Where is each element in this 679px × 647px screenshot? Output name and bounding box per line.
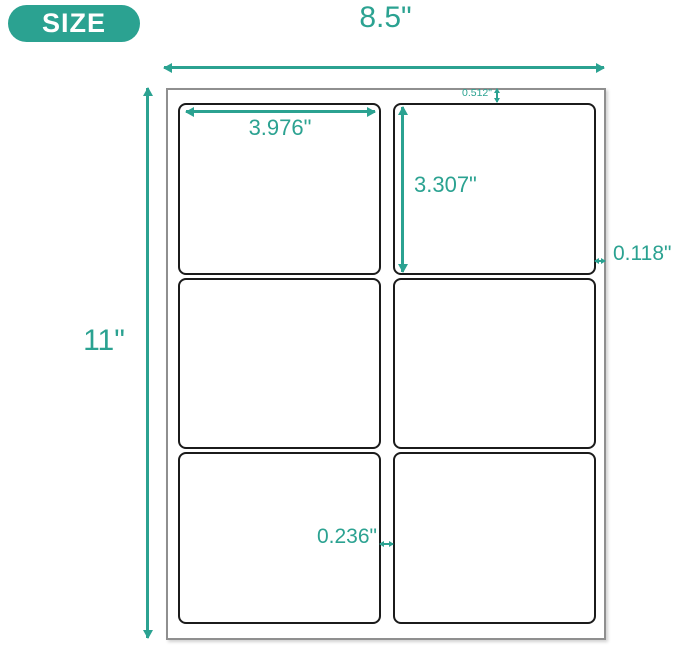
center-gap-double-arrow-icon [380,543,393,545]
side-margin-double-arrow-icon [595,260,605,262]
top-margin-value: 0.512" [430,87,492,99]
label-width-double-arrow-icon [186,110,375,113]
label-sheet [166,88,606,640]
sheet-height-double-arrow-icon [146,88,149,638]
top-margin-double-arrow-icon [496,89,498,102]
label-height-value: 3.307" [414,172,477,198]
label-width-value: 3.976" [196,115,364,141]
size-badge-label: SIZE [42,8,106,39]
sheet-width-double-arrow-icon [164,66,604,69]
label-height-double-arrow-icon [401,107,404,272]
label-grid [178,103,596,624]
sheet-width-value: 8.5" [165,1,606,35]
label-cell-row2-col2 [393,278,596,450]
sheet-height-value: 11" [68,324,140,358]
label-sheet-size-diagram: SIZE 8.5" 11" 3.976" 3.307" 0.512" 0.118… [0,0,679,647]
label-cell-row3-col2 [393,452,596,624]
label-cell-row2-col1 [178,278,381,450]
size-badge: SIZE [8,5,140,42]
side-margin-value: 0.118" [613,242,671,266]
center-gap-value: 0.236" [300,525,377,549]
